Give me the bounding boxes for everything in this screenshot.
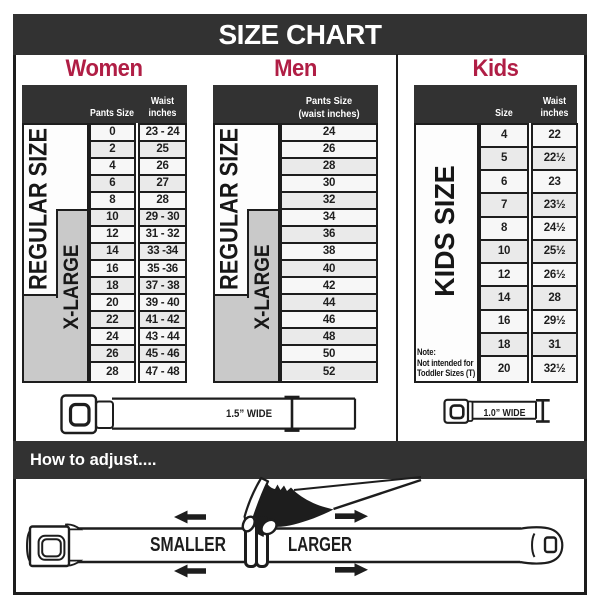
svg-text:1.0” WIDE: 1.0” WIDE — [484, 407, 526, 419]
svg-text:LARGER: LARGER — [288, 534, 352, 556]
svg-text:SMALLER: SMALLER — [150, 534, 226, 556]
svg-text:1.5” WIDE: 1.5” WIDE — [226, 408, 272, 420]
